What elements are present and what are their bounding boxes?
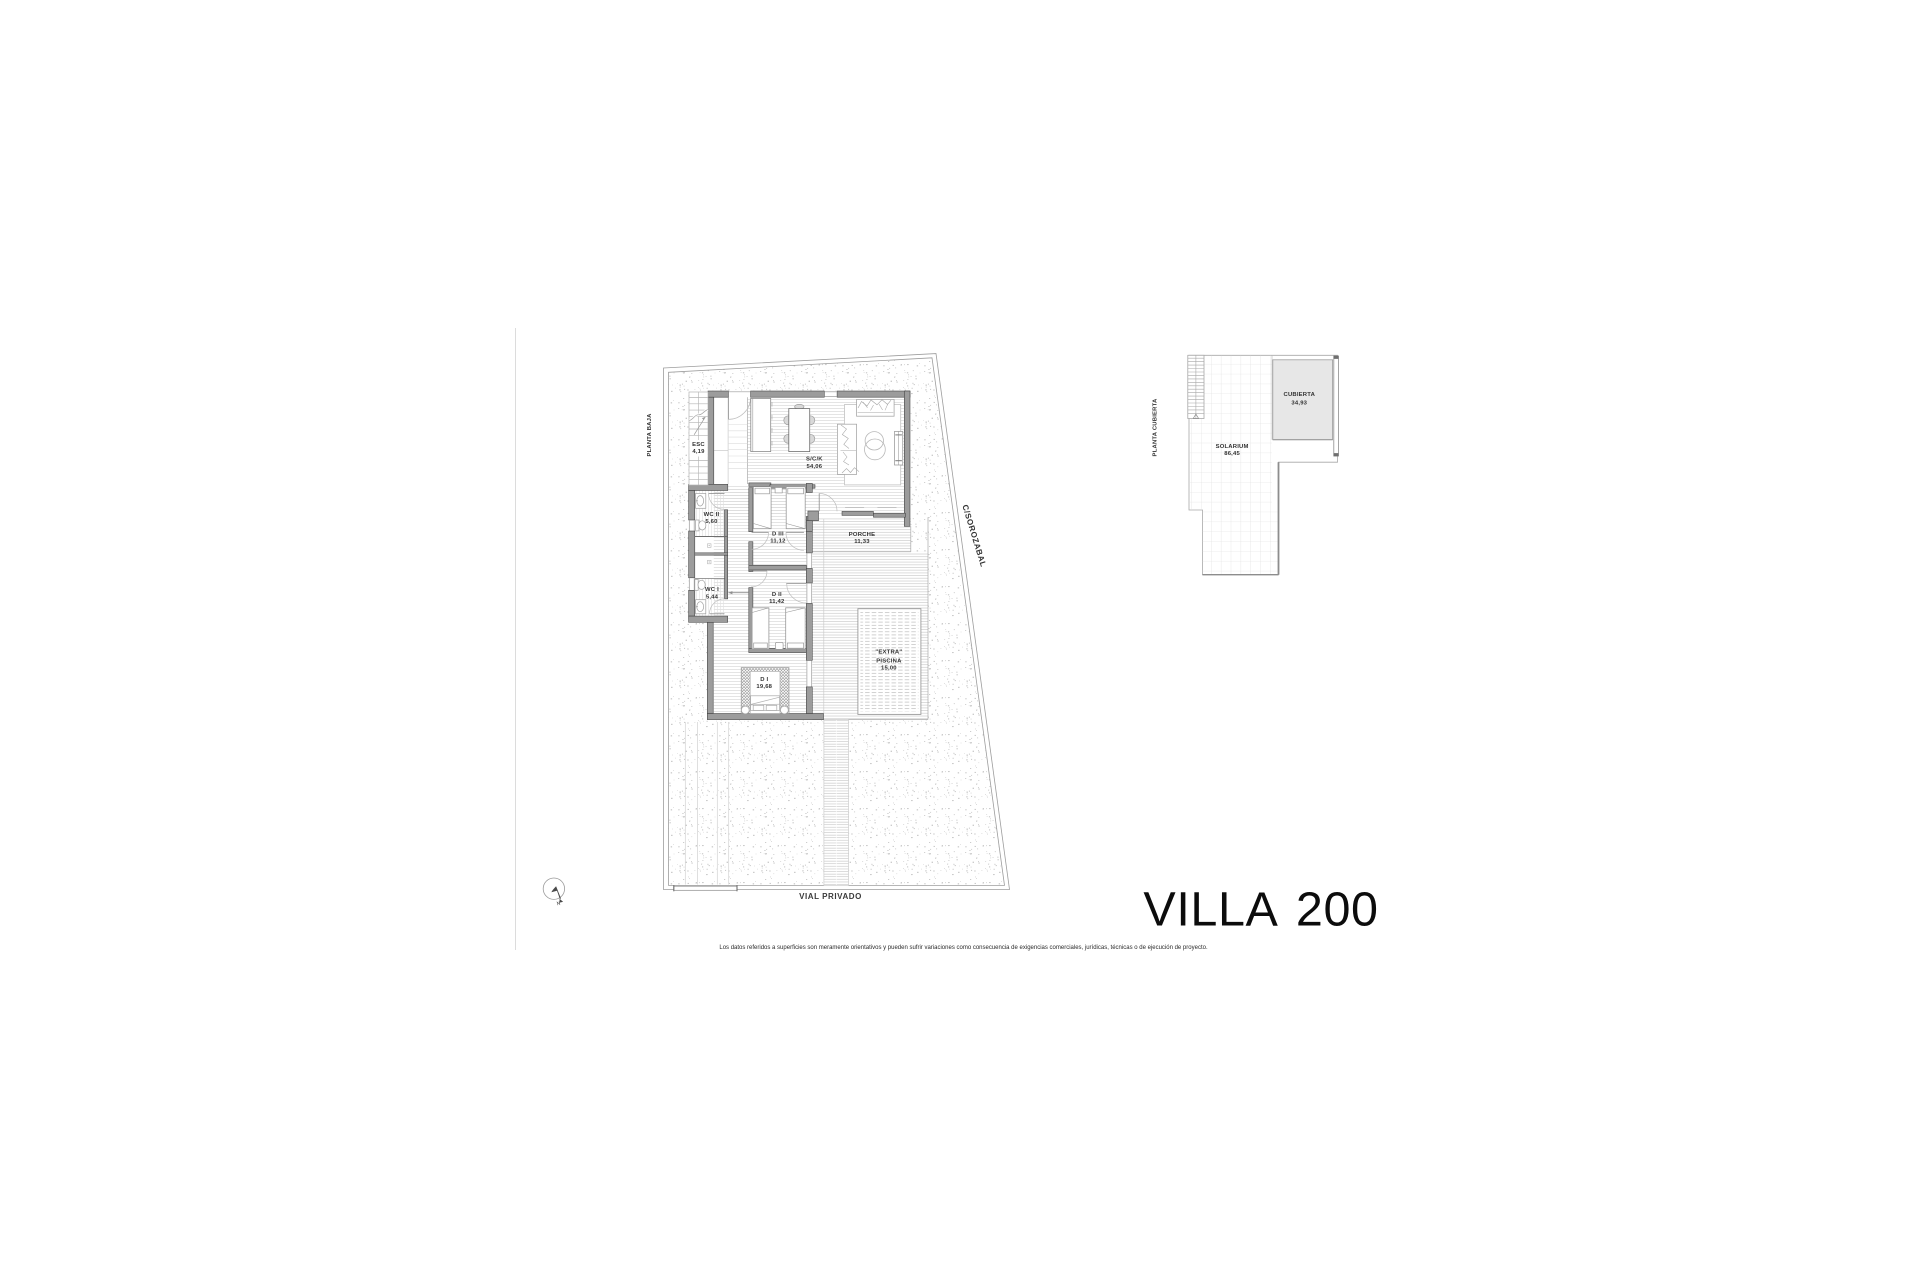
svg-text:5,44: 5,44 — [706, 594, 719, 600]
svg-text:4,19: 4,19 — [692, 449, 705, 455]
svg-text:D II: D II — [772, 592, 782, 598]
svg-text:86,45: 86,45 — [1224, 451, 1240, 457]
svg-text:PLANTA CUBIERTA: PLANTA CUBIERTA — [1152, 398, 1158, 456]
svg-text:D III: D III — [772, 531, 784, 537]
svg-text:Los datos referidos a superfic: Los datos referidos a superficies son me… — [719, 945, 1208, 951]
svg-text:PORCHE: PORCHE — [849, 532, 875, 538]
svg-text:PLANTA BAJA: PLANTA BAJA — [647, 413, 653, 457]
svg-text:VILLA 200: VILLA 200 — [1143, 883, 1378, 937]
svg-text:WC I: WC I — [705, 587, 719, 593]
svg-text:34,93: 34,93 — [1291, 400, 1307, 406]
svg-text:D I: D I — [760, 677, 768, 683]
svg-text:11,42: 11,42 — [769, 599, 785, 605]
svg-text:VIAL PRIVADO: VIAL PRIVADO — [799, 892, 862, 901]
svg-text:PISCINA: PISCINA — [876, 659, 902, 665]
svg-text:11,12: 11,12 — [770, 539, 786, 545]
svg-text:CUBIERTA: CUBIERTA — [1283, 392, 1315, 398]
svg-text:5,60: 5,60 — [705, 519, 718, 525]
svg-text:S/C/K: S/C/K — [806, 457, 823, 463]
svg-text:11,33: 11,33 — [854, 539, 870, 545]
svg-text:"EXTRA": "EXTRA" — [875, 649, 902, 655]
svg-text:SOLARIUM: SOLARIUM — [1216, 444, 1249, 450]
svg-text:15,00: 15,00 — [881, 666, 897, 672]
svg-text:19,68: 19,68 — [756, 684, 772, 690]
svg-text:WC II: WC II — [704, 512, 720, 518]
svg-text:ESC: ESC — [692, 442, 705, 448]
svg-text:54,06: 54,06 — [807, 464, 823, 470]
